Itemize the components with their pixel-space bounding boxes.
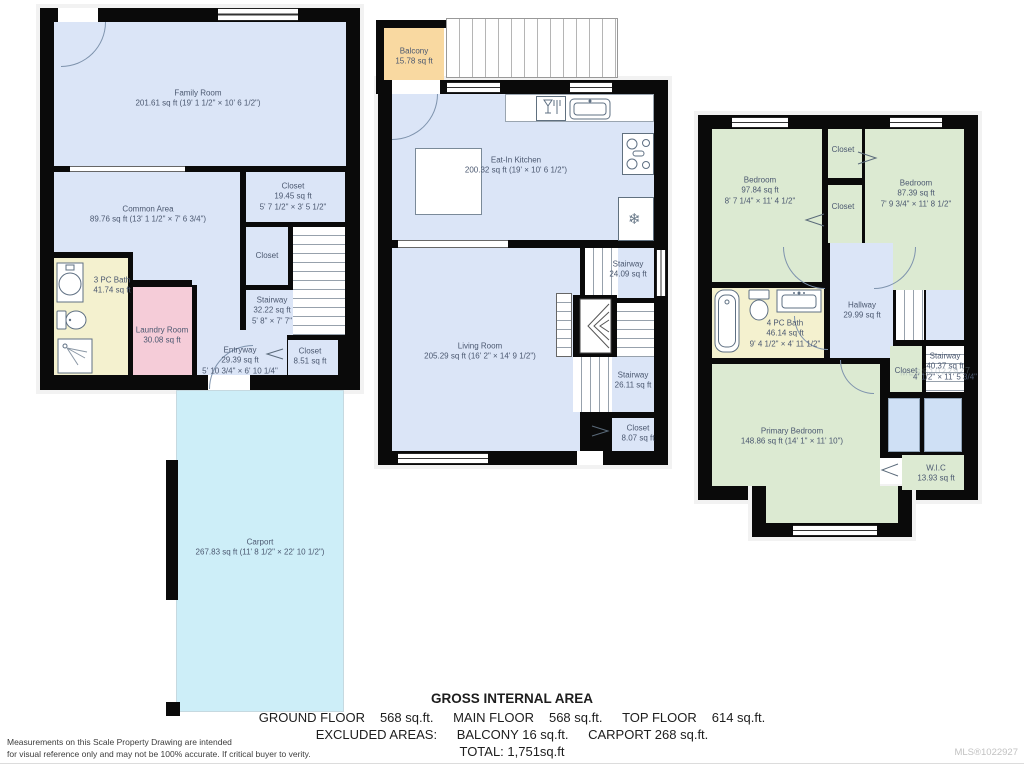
disclaimer-line-1: Measurements on this Scale Property Draw… xyxy=(7,737,232,747)
floor-areas-line: GROUND FLOOR568 sq.ft. MAIN FLOOR568 sq.… xyxy=(0,710,1024,725)
room-label-balcony: Balcony 15.78 sq ft xyxy=(395,47,432,68)
window xyxy=(447,82,500,93)
room-primary-bump xyxy=(766,486,898,523)
interior-opening xyxy=(398,240,508,248)
toilet-fixture-icon xyxy=(56,306,88,334)
room-label-family-room: Family Room 201.61 sq ft (19' 1 1/2" × 1… xyxy=(135,89,260,110)
dishwasher-icon xyxy=(540,98,564,119)
room-label-closet-main: Closet 8.07 sq ft xyxy=(622,424,655,445)
window xyxy=(398,453,488,464)
room-label-stairway-lower: Stairway 26.11 sq ft xyxy=(615,371,652,392)
main-floor-label: MAIN FLOOR xyxy=(453,710,534,725)
wall xyxy=(192,287,197,375)
room-label-primary: Primary Bedroom 148.86 sq ft (14' 1" × 1… xyxy=(741,427,843,448)
room-label-stairway-upper: Stairway 24.09 sq ft xyxy=(609,260,646,281)
excluded-label: EXCLUDED AREAS: xyxy=(316,727,437,742)
deck-hatch xyxy=(446,18,618,78)
vanity-sink-fixture-icon xyxy=(776,289,822,313)
closet-door-chevron-icon xyxy=(856,150,878,166)
room-label-closet-large: Closet 19.45 sq ft 5' 7 1/2" × 3' 5 1/2" xyxy=(260,181,327,212)
interior-opening xyxy=(70,166,185,172)
balcony-wall xyxy=(376,20,384,94)
room-label-carport: Carport 267.83 sq ft (11' 8 1/2" × 22' 1… xyxy=(196,538,325,559)
room-label-closet-entry: Closet 8.51 sq ft xyxy=(294,347,327,368)
room-label-living: Living Room 205.29 sq ft (16' 2" × 14' 9… xyxy=(424,342,536,363)
carport-wall xyxy=(166,460,178,600)
excluded-carport: CARPORT 268 sq.ft. xyxy=(588,727,708,742)
wall xyxy=(54,252,133,258)
room-label-closet-small: Closet xyxy=(256,251,279,261)
closet-door-chevron-icon xyxy=(804,212,826,228)
room-label-closet-mid: Closet xyxy=(832,202,855,212)
fridge-snowflake-icon: ❄ xyxy=(628,212,641,227)
room-label-4pc-bath: 4 PC Bath 46.14 sq ft 9' 4 1/2" × 4' 11 … xyxy=(750,318,821,349)
stairwell-pane xyxy=(888,398,920,452)
stair-treads xyxy=(617,303,654,357)
bathtub-fixture-icon xyxy=(714,289,740,353)
closet-door-chevron-icon xyxy=(880,462,900,478)
excluded-balcony: BALCONY 16 sq.ft. xyxy=(457,727,569,742)
room-label-bedroom-left: Bedroom 97.84 sq ft 8' 7 1/4" × 11' 4 1/… xyxy=(725,175,796,206)
room-label-closet-top: Closet xyxy=(832,145,855,155)
bottom-rule xyxy=(0,763,1024,764)
stair-treads xyxy=(573,357,612,412)
top-floor-label: TOP FLOOR xyxy=(622,710,697,725)
room-label-hallway: Hallway 29.99 sq ft xyxy=(843,301,880,322)
door-opening xyxy=(392,80,440,94)
closet-door-chevron-icon xyxy=(590,424,610,438)
window xyxy=(218,8,298,21)
gross-internal-area-title: GROSS INTERNAL AREA xyxy=(0,691,1024,706)
room-label-3pc-bath: 3 PC Bath 41.74 sq ft xyxy=(93,276,130,297)
fireplace-icon xyxy=(573,295,617,357)
window xyxy=(656,250,666,296)
sink-fixture-icon xyxy=(56,262,84,303)
ground-floor-value: 568 sq.ft. xyxy=(380,710,433,725)
stairwell-pane xyxy=(924,398,962,452)
stair-rail xyxy=(556,293,572,357)
window xyxy=(570,82,612,93)
room-stair-landing xyxy=(926,290,964,340)
room-label-bedroom-right: Bedroom 87.39 sq ft 7' 9 3/4" × 11' 8 1/… xyxy=(881,178,952,209)
mls-number: MLS®1022927 xyxy=(954,747,1018,758)
room-label-stairway-ground: Stairway 32.22 sq ft 5' 8" × 7' 7" xyxy=(252,295,292,326)
stair-treads xyxy=(293,227,345,335)
room-label-common-area: Common Area 89.76 sq ft (13' 1 1/2" × 7'… xyxy=(90,205,206,226)
room-label-laundry: Laundry Room 30.08 sq ft xyxy=(136,326,188,347)
room-closet-mid xyxy=(828,185,862,243)
door-opening xyxy=(58,8,98,22)
window xyxy=(793,525,877,536)
mls-watermark: MLS®1022927 xyxy=(900,364,995,377)
room-label-wic: W.I.C 13.93 sq ft xyxy=(917,464,954,485)
stove-burners-icon xyxy=(622,133,654,175)
room-label-kitchen: Eat-In Kitchen 200.32 sq ft (19' × 10' 6… xyxy=(465,156,567,177)
window xyxy=(732,117,788,128)
stair-treads xyxy=(896,290,924,340)
floor-plan-canvas: ❄ xyxy=(0,0,1024,767)
shower-fixture-icon xyxy=(57,338,93,374)
room-label-entryway: Entryway 29.39 sq ft 5' 10 3/4" × 6' 10 … xyxy=(202,345,278,376)
ground-floor-label: GROUND FLOOR xyxy=(259,710,365,725)
disclaimer-line-2: for visual reference only and may not be… xyxy=(7,749,311,759)
door-opening xyxy=(577,451,603,465)
window xyxy=(890,117,942,128)
main-floor-value: 568 sq.ft. xyxy=(549,710,602,725)
top-floor-value: 614 sq.ft. xyxy=(712,710,765,725)
wall xyxy=(133,280,192,287)
kitchen-sink-icon xyxy=(568,95,612,122)
balcony-wall xyxy=(376,20,446,28)
